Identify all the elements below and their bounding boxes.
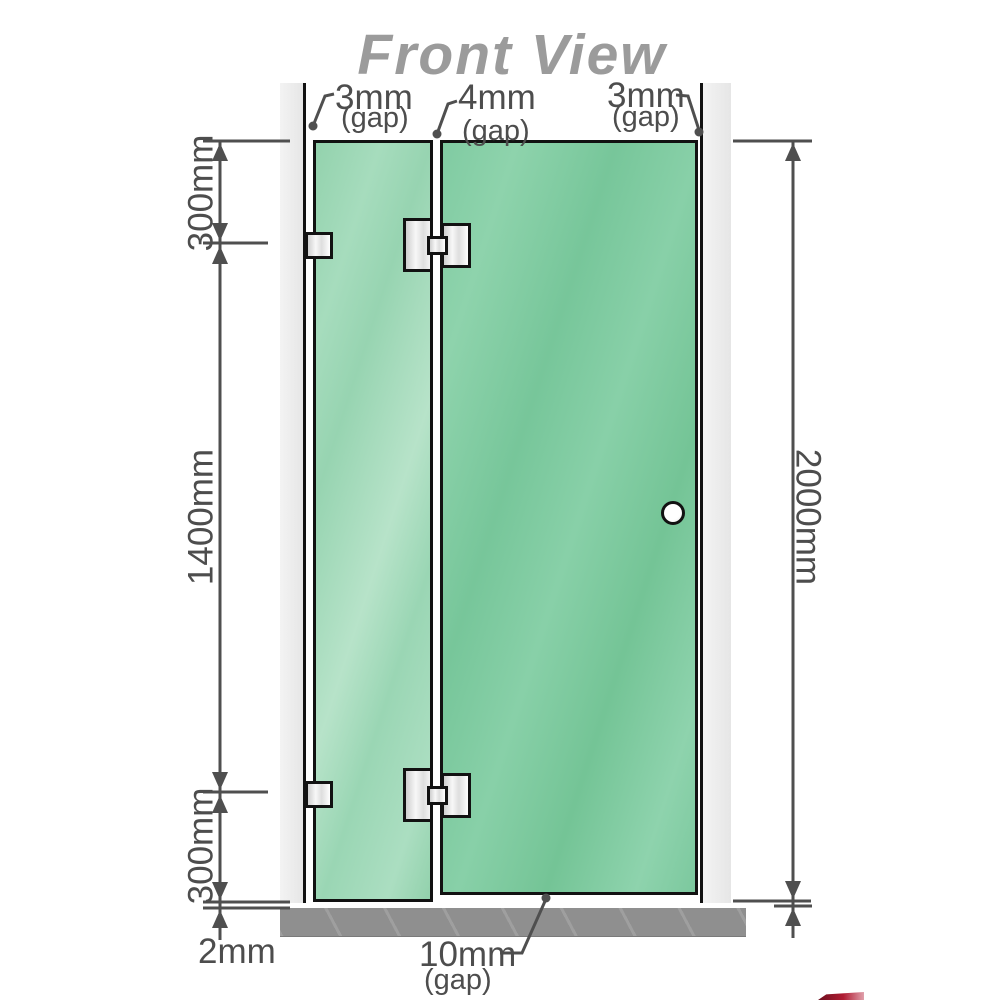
floor-base [280, 908, 746, 937]
wall-bracket-bottom [305, 781, 333, 808]
gap-label-left-sub: (gap) [341, 104, 409, 133]
dim-label-floor-gap-2mm: 2mm [198, 934, 276, 969]
dim-label-door-gap-sub: (gap) [424, 966, 492, 995]
dim-label-bottom-300mm: 300mm [184, 788, 219, 905]
front-view-diagram: Front View [0, 0, 1000, 1000]
wall-bracket-top [305, 232, 333, 259]
door-glass-panel [440, 140, 698, 895]
left-wall-post [280, 83, 306, 903]
right-wall-post [700, 83, 731, 903]
door-handle-knob [661, 501, 685, 525]
dim-label-mid-1400mm: 1400mm [184, 449, 219, 585]
dim-label-total-2000mm: 2000mm [791, 449, 826, 585]
gap-label-right-sub: (gap) [612, 103, 680, 132]
hinge-top-tab [427, 236, 448, 255]
gap-label-mid-sub: (gap) [462, 117, 530, 146]
gap-label-mid: 4mm [458, 80, 536, 115]
dim-label-top-300mm: 300mm [184, 135, 219, 252]
watermark-logo-sliver [818, 992, 864, 1000]
hinge-bottom-tab [427, 786, 448, 805]
